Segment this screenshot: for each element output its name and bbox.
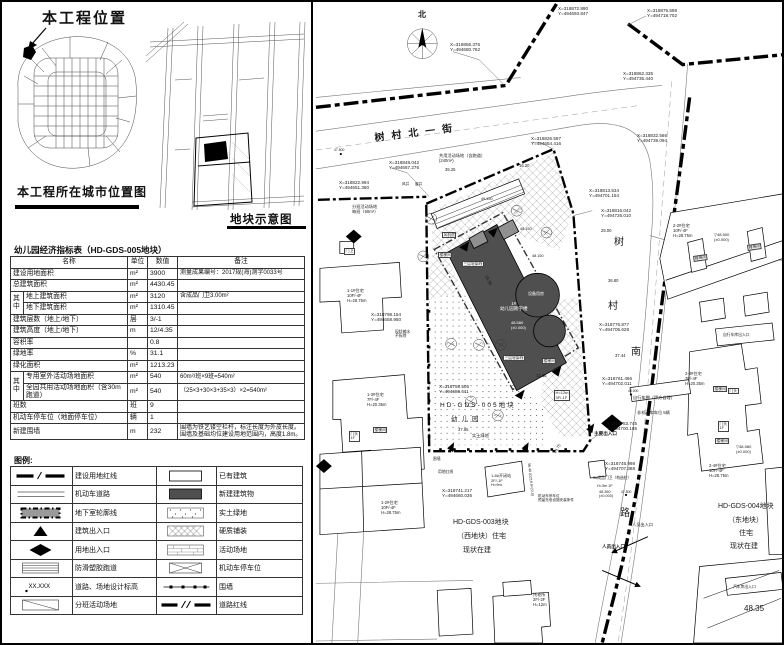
col-name: 名称 xyxy=(11,257,128,269)
legend-row: XX.XXX道路、场地设计标高围墙 xyxy=(11,578,303,597)
site-entry-symbol xyxy=(11,541,73,560)
legend-row: 分班活动场地道路红线 xyxy=(11,596,303,615)
table-cell: 1310.45 xyxy=(148,303,178,315)
legend-label: 用地出入口 xyxy=(73,541,157,560)
table-cell: m² xyxy=(128,280,148,292)
plot-schematic xyxy=(146,20,308,212)
table-cell xyxy=(178,303,305,315)
table-cell: 层 xyxy=(128,314,148,326)
table-cell: 地下建筑面积 xyxy=(24,303,128,315)
table-cell xyxy=(178,314,305,326)
activity-symbol xyxy=(157,541,217,560)
green-symbol xyxy=(157,504,217,523)
drawing-sheet: 本工程位置 本工程所在城市位置图 xyxy=(0,0,784,645)
table-cell: 9 xyxy=(148,401,178,413)
table-cell: m xyxy=(128,326,148,338)
plot-map-caption: 地块示意图 xyxy=(230,211,293,227)
legend-body: 建设用地红线已有建筑机动车道路新建建筑物地下室轮廓线实土绿地建筑出入口硬质铺装用… xyxy=(11,467,303,615)
table-cell xyxy=(178,280,305,292)
table-cell: 12/4.35 xyxy=(148,326,178,338)
table-cell: 建筑高度（地上/地下） xyxy=(11,326,128,338)
table-cell: 232 xyxy=(148,424,178,440)
site-plan-drawing xyxy=(315,2,784,643)
table-cell: 3120 xyxy=(148,291,178,303)
north-compass xyxy=(407,28,437,59)
road-redline-north xyxy=(316,4,556,107)
site-plan: 北树村北一街树村南路X=318856.376 Y=494680.762X=318… xyxy=(315,2,784,643)
table-row: 建设用地面积m²3900测量成果编号：2017规(海)测字0033号 xyxy=(11,268,305,280)
spot-elev-symbol: XX.XXX xyxy=(11,578,73,597)
legend-label: 建设用地红线 xyxy=(73,467,157,486)
legend-label: 已有建筑 xyxy=(217,467,303,486)
site-boundary-west xyxy=(318,197,426,200)
table-row: 班数班9 xyxy=(11,401,305,413)
table-cell: 540 xyxy=(148,372,178,384)
location-arrow xyxy=(32,28,46,44)
table-row: 建筑高度（地上/地下）m12/4.35 xyxy=(11,326,305,338)
city-location-map xyxy=(8,26,144,178)
table-cell: 绿地率 xyxy=(11,349,128,361)
table-row: 地下建筑面积m²1310.45 xyxy=(11,303,305,315)
legend-label: 实土绿地 xyxy=(217,504,303,523)
table-cell xyxy=(128,337,148,349)
bldg-entry-symbol xyxy=(11,522,73,541)
legend-title: 图例: xyxy=(14,455,33,466)
table-row: 其中地上建筑面积m²3120含成品门卫3.00m² xyxy=(11,291,305,303)
table-cell: 540 xyxy=(148,383,178,401)
legend-label: 防滑塑胶跑道 xyxy=(73,559,157,578)
legend-label: 硬质铺装 xyxy=(217,522,303,541)
table-cell: m² xyxy=(128,303,148,315)
table-cell: 专用室外活动场地面积 xyxy=(24,372,128,384)
table-cell: 31.1 xyxy=(148,349,178,361)
caption-underline xyxy=(227,226,306,229)
legend-label: 新建建筑物 xyxy=(217,485,303,504)
plot-marker xyxy=(204,141,228,162)
table-cell: m xyxy=(128,424,148,440)
col-remark: 备注 xyxy=(178,257,305,269)
caption-underline xyxy=(15,205,139,209)
legend-label: 活动场地 xyxy=(217,541,303,560)
table-cell: 建筑层数（地上/地下） xyxy=(11,314,128,326)
legend-label: 机动车停车位 xyxy=(217,559,303,578)
table-row: 绿地率%31.1 xyxy=(11,349,305,361)
indicator-table: 名称 单位 数值 备注 建设用地面积m²3900测量成果编号：2017规(海)测… xyxy=(10,256,305,440)
table-cell: 容积率 xyxy=(11,337,128,349)
legend-label: 机动车道路 xyxy=(73,485,157,504)
table-cell: 测量成果编号：2017规(海)测字0033号 xyxy=(178,268,305,280)
table-cell: m² xyxy=(128,360,148,372)
table-row: 总建筑面积m²4430.45 xyxy=(11,280,305,292)
road-symbol xyxy=(11,485,73,504)
table-cell xyxy=(178,360,305,372)
table-cell: 含成品门卫3.00m² xyxy=(178,291,305,303)
legend-label: 建筑出入口 xyxy=(73,522,157,541)
table-cell: 绿化面积 xyxy=(11,360,128,372)
fence-symbol xyxy=(157,578,217,597)
legend-row: 地下室轮廓线实土绿地 xyxy=(11,504,303,523)
site-entrance-diamond xyxy=(601,414,623,432)
table-cell: 建设用地面积 xyxy=(11,268,128,280)
table-cell xyxy=(178,337,305,349)
city-map-title: 本工程位置 xyxy=(42,7,127,28)
table-cell: m² xyxy=(128,268,148,280)
paving-symbol xyxy=(157,522,217,541)
table-row: 绿化面积m²1213.23 xyxy=(11,360,305,372)
road-redline-symbol xyxy=(157,596,217,615)
city-map-caption: 本工程所在城市位置图 xyxy=(17,183,147,200)
table-cell: 总建筑面积 xyxy=(11,280,128,292)
left-panel: 本工程位置 本工程所在城市位置图 xyxy=(2,2,311,643)
table-cell xyxy=(178,412,305,424)
col-unit: 单位 xyxy=(128,257,148,269)
table-cell: % xyxy=(128,349,148,361)
table-cell: m² xyxy=(128,291,148,303)
legend-row: 防滑塑胶跑道机动车停车位 xyxy=(11,559,303,578)
table-row: 机动车停车位（地面停车位）辆1 xyxy=(11,412,305,424)
table-row: 容积率0.8 xyxy=(11,337,305,349)
table-row: 全园共用活动场地面积（含30m跑道）m²540（25×3+30×3+35×3）×… xyxy=(11,383,305,401)
legend-row: 机动车道路新建建筑物 xyxy=(11,485,303,504)
indicator-table-title: 幼儿园经济指标表（HD-GDS-005地块） xyxy=(14,244,167,256)
legend-row: 用地出入口活动场地 xyxy=(11,541,303,560)
col-value: 数值 xyxy=(148,257,178,269)
table-cell xyxy=(178,401,305,413)
table-cell: 4430.45 xyxy=(148,280,178,292)
class-area-symbol xyxy=(11,596,73,615)
table-cell: m² xyxy=(128,383,148,401)
svg-text:XX.XXX: XX.XXX xyxy=(29,584,51,590)
legend-label: 围墙 xyxy=(217,578,303,597)
table-cell: 3/-1 xyxy=(148,314,178,326)
table-cell xyxy=(178,349,305,361)
table-cell: （25×3+30×3+35×3）×2=540m² xyxy=(178,383,305,401)
table-cell: m² xyxy=(128,372,148,384)
legend: 建设用地红线已有建筑机动车道路新建建筑物地下室轮廓线实土绿地建筑出入口硬质铺装用… xyxy=(10,466,303,615)
table-header-row: 名称 单位 数值 备注 xyxy=(11,257,305,269)
legend-label: 地下室轮廓线 xyxy=(73,504,157,523)
legend-row: 建筑出入口硬质铺装 xyxy=(11,522,303,541)
table-row: 其中专用室外活动场地面积m²54060m²/班×9班=540m² xyxy=(11,372,305,384)
red-boundary-symbol xyxy=(11,467,73,486)
table-cell: 机动车停车位（地面停车位） xyxy=(11,412,128,424)
table-cell: 地上建筑面积 xyxy=(24,291,128,303)
table-cell xyxy=(178,326,305,338)
table-cell: 班 xyxy=(128,401,148,413)
table-cell: 0.8 xyxy=(148,337,178,349)
table-cell: 其中 xyxy=(11,291,24,314)
table-cell: 新建围墙 xyxy=(11,424,128,440)
track-symbol xyxy=(11,559,73,578)
table-cell: 3900 xyxy=(148,268,178,280)
table-cell: 围墙为铁艺镂空栏杆，标注长度为外皮长度。围墙及基础均位建设用地范围内，高度1.8… xyxy=(178,424,305,440)
legend-label: 道路红线 xyxy=(217,596,303,615)
legend-label: 分班活动场地 xyxy=(73,596,157,615)
table-row: 新建围墙m232围墙为铁艺镂空栏杆，标注长度为外皮长度。围墙及基础均位建设用地范… xyxy=(11,424,305,440)
table-cell: 其中 xyxy=(11,372,24,401)
table-cell: 辆 xyxy=(128,412,148,424)
existing-symbol xyxy=(157,467,217,486)
road-redline-northeast xyxy=(628,24,783,65)
table-cell: 1213.23 xyxy=(148,360,178,372)
legend-label: 道路、场地设计标高 xyxy=(73,578,157,597)
basement-symbol xyxy=(11,504,73,523)
legend-row: 建设用地红线已有建筑 xyxy=(11,467,303,486)
parking-symbol xyxy=(157,559,217,578)
panel-divider xyxy=(311,2,313,643)
table-row: 建筑层数（地上/地下）层3/-1 xyxy=(11,314,305,326)
indicator-table-body: 建设用地面积m²3900测量成果编号：2017规(海)测字0033号总建筑面积m… xyxy=(11,268,305,439)
new-bldg-symbol xyxy=(157,485,217,504)
table-cell: 60m²/班×9班=540m² xyxy=(178,372,305,384)
road-redline-east xyxy=(602,97,689,643)
table-cell: 1 xyxy=(148,412,178,424)
table-cell: 全园共用活动场地面积（含30m跑道） xyxy=(24,383,128,401)
table-cell: 班数 xyxy=(11,401,128,413)
